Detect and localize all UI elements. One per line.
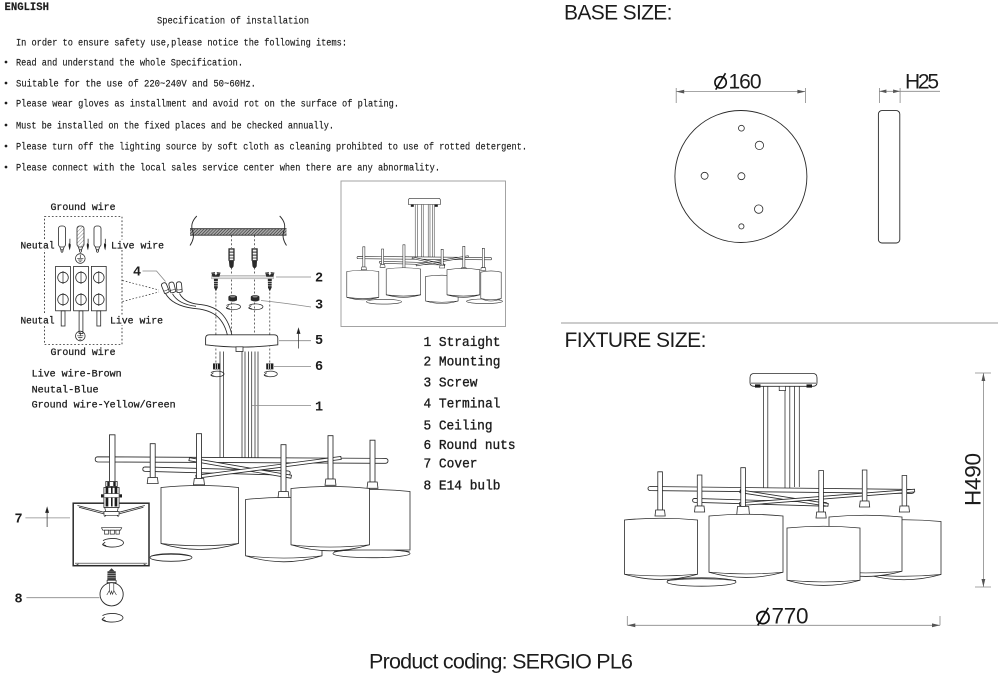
svg-text:2: 2 [315, 272, 323, 287]
svg-text:Please wear gloves as installm: Please wear gloves as installment and av… [16, 99, 399, 111]
svg-text:BASE SIZE:: BASE SIZE: [564, 2, 673, 25]
svg-text:Ground wire: Ground wire [51, 347, 116, 359]
svg-text:3: 3 [315, 299, 323, 314]
svg-text:Must be installed on the fixed: Must be installed on the fixed places an… [16, 121, 334, 133]
svg-text:Read and understand the whole: Read and understand the whole Specificat… [16, 58, 243, 70]
svg-text:Please turn off the lighting s: Please turn off the lighting source by s… [16, 142, 527, 154]
svg-text:1: 1 [315, 401, 323, 416]
svg-text:Live wire: Live wire [110, 316, 163, 328]
svg-text:4: 4 [133, 266, 141, 281]
svg-text:FIXTURE SIZE:: FIXTURE SIZE: [565, 329, 707, 352]
svg-text:160: 160 [729, 71, 762, 94]
svg-text:7 Cover: 7 Cover [424, 458, 478, 473]
svg-text:4 Terminal: 4 Terminal [424, 398, 501, 413]
svg-text:5 Ceiling: 5 Ceiling [424, 420, 493, 435]
svg-text:770: 770 [772, 604, 809, 629]
svg-text:Neutal: Neutal [21, 241, 55, 253]
svg-text:Ground wire: Ground wire [51, 202, 116, 214]
svg-text:3 Screw: 3 Screw [424, 377, 478, 392]
svg-text:7: 7 [15, 513, 23, 528]
svg-text:Suitable for the use of 220~24: Suitable for the use of 220~240V and 50~… [16, 79, 256, 91]
svg-text:Product coding: SERGIO PL6: Product coding: SERGIO PL6 [369, 650, 633, 674]
svg-text:ENGLISH: ENGLISH [5, 2, 50, 14]
svg-text:2 Mounting: 2 Mounting [424, 356, 501, 371]
svg-text:8: 8 [15, 593, 23, 608]
svg-text:H25: H25 [905, 71, 939, 94]
svg-text:Live wire: Live wire [111, 241, 164, 253]
svg-text:5: 5 [315, 334, 323, 349]
svg-text:6 Round nuts: 6 Round nuts [424, 439, 516, 454]
svg-text:Neutal: Neutal [21, 316, 55, 328]
svg-text:Live wire-Brown: Live wire-Brown [32, 368, 122, 380]
svg-text:Please connect with the local: Please connect with the local sales serv… [16, 163, 440, 175]
svg-text:6: 6 [315, 360, 323, 375]
svg-text:Specification of installation: Specification of installation [157, 16, 309, 28]
svg-text:8 E14 bulb: 8 E14 bulb [424, 480, 501, 495]
svg-text:H490: H490 [961, 453, 986, 506]
svg-text:1 Straight: 1 Straight [424, 336, 501, 351]
svg-text:In order to ensure safety use,: In order to ensure safety use,please not… [16, 38, 347, 50]
svg-text:Ground wire-Yellow/Green: Ground wire-Yellow/Green [32, 400, 176, 412]
svg-text:Neutal-Blue: Neutal-Blue [32, 385, 99, 397]
